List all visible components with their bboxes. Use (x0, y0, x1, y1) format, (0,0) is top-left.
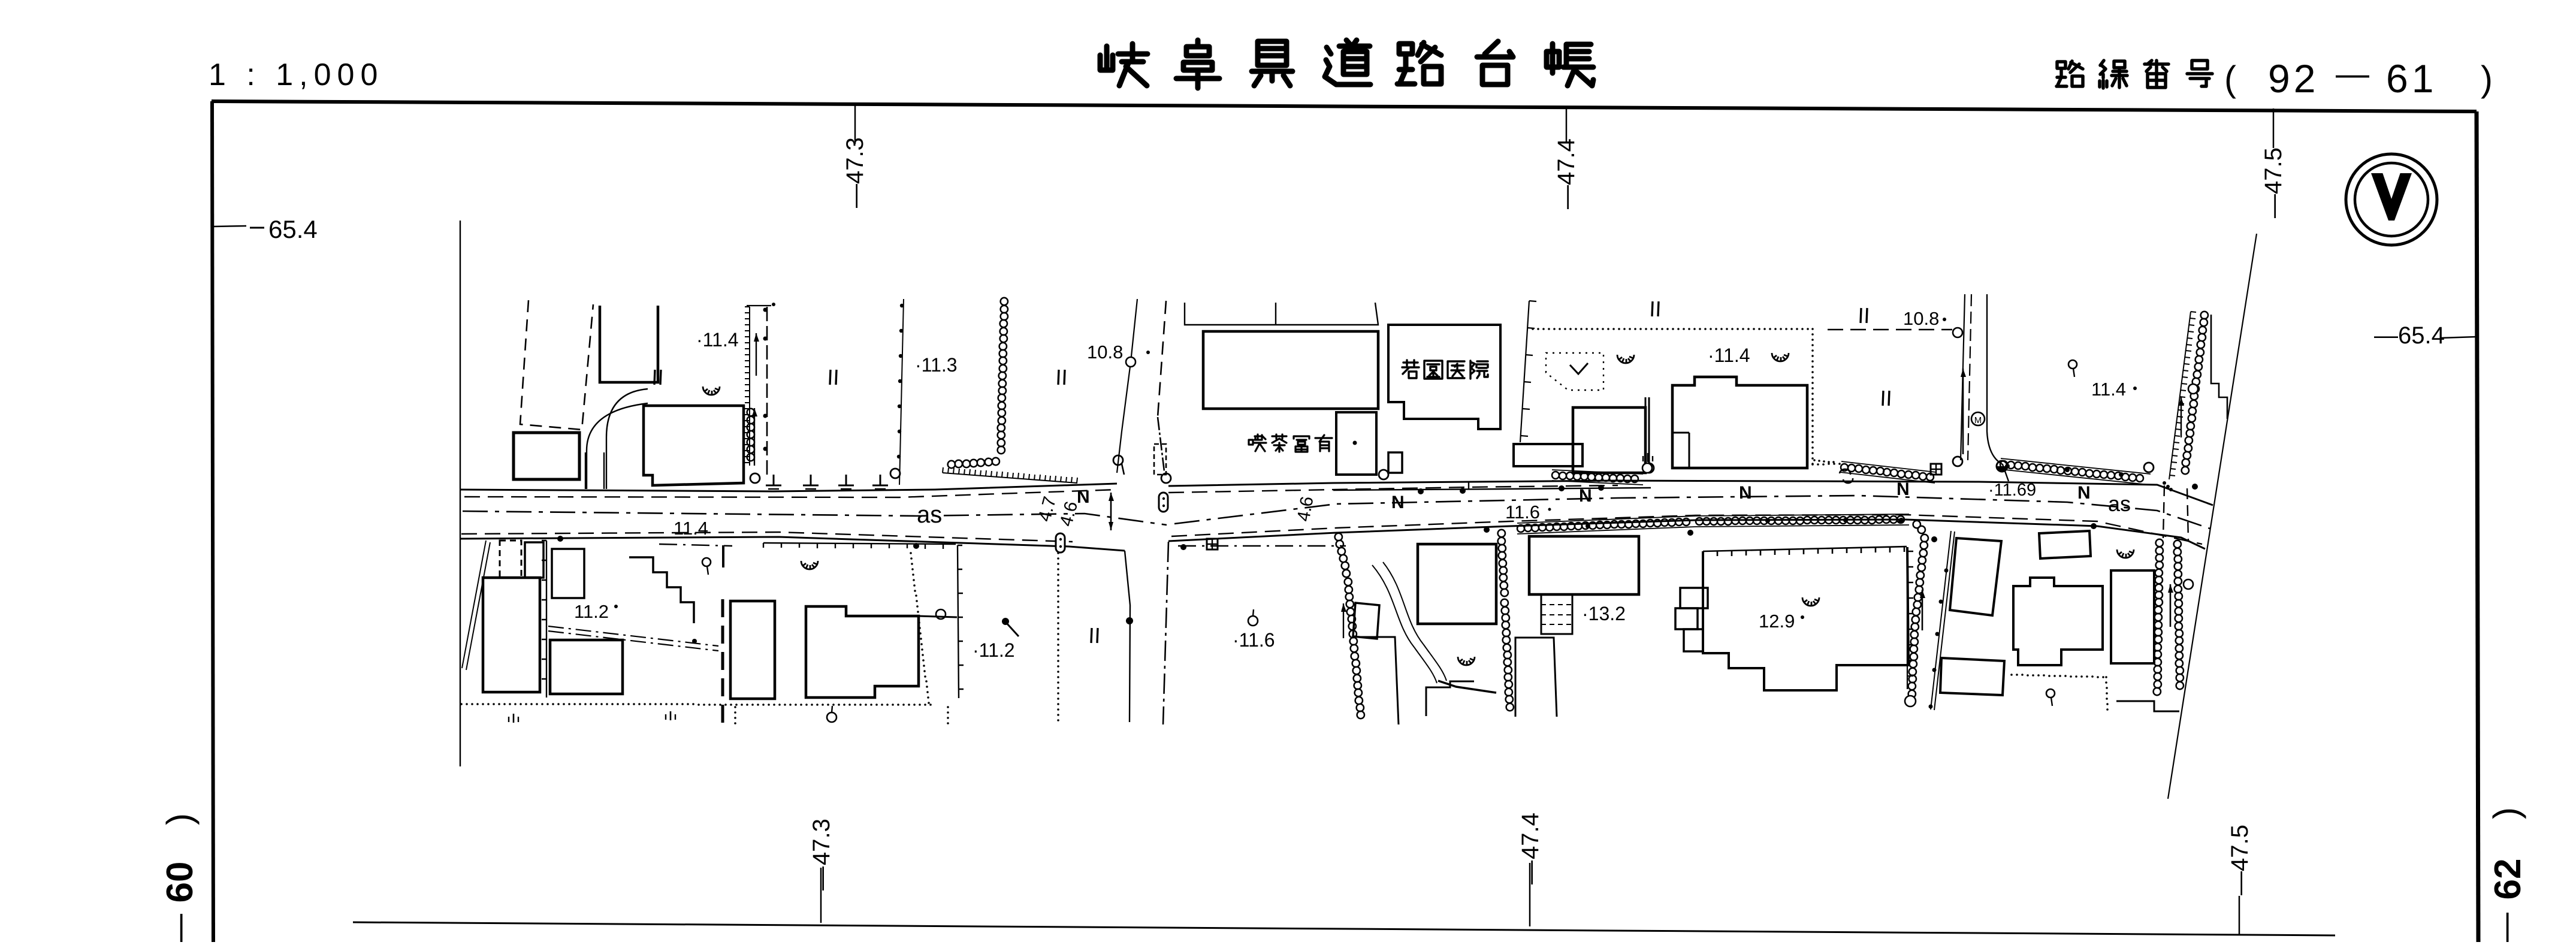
svg-text:N: N (1579, 486, 1592, 506)
svg-text:N: N (1391, 493, 1405, 512)
svg-text:1 : 1,000: 1 : 1,000 (209, 58, 383, 92)
svg-text:·11.6: ·11.6 (1233, 629, 1275, 651)
svg-text:as: as (2108, 491, 2131, 516)
svg-text:11.4: 11.4 (674, 518, 708, 539)
svg-text:65.4: 65.4 (268, 215, 318, 243)
svg-text:92: 92 (2268, 56, 2319, 101)
svg-text:60: 60 (159, 862, 201, 903)
svg-text:—47.4: —47.4 (1553, 138, 1580, 209)
svg-text:·11.2: ·11.2 (973, 639, 1015, 661)
svg-text:N: N (1896, 479, 1910, 499)
svg-text:N: N (2077, 483, 2091, 503)
svg-text:61: 61 (2386, 56, 2437, 101)
svg-text:—: — (2486, 913, 2523, 942)
svg-text:—47.3: —47.3 (842, 137, 868, 208)
svg-text:47.4: 47.4 (1517, 813, 1544, 859)
svg-text:47.5: 47.5 (2227, 825, 2253, 871)
svg-text:): ) (159, 813, 200, 825)
svg-text:·11.3: ·11.3 (915, 354, 958, 376)
svg-text:as: as (917, 502, 942, 528)
svg-text:·11.69: ·11.69 (1988, 481, 2036, 500)
svg-text:62: 62 (2487, 859, 2529, 900)
svg-text:47.3: 47.3 (808, 819, 835, 865)
svg-text:—: — (2336, 55, 2369, 92)
svg-text:—: — (159, 914, 197, 942)
svg-text:11.6: 11.6 (1505, 502, 1540, 523)
svg-text:—: — (808, 866, 835, 890)
svg-text:11.4: 11.4 (2091, 379, 2126, 400)
svg-text:·11.4: ·11.4 (1708, 345, 1750, 366)
svg-text:): ) (2486, 807, 2526, 819)
svg-text:11.2: 11.2 (574, 601, 609, 622)
svg-text:10.8: 10.8 (1087, 342, 1123, 363)
svg-text:10.8: 10.8 (1903, 308, 1939, 329)
svg-text:M: M (1974, 415, 1982, 425)
svg-text:(: ( (2224, 59, 2236, 99)
svg-text:—47.5: —47.5 (2260, 147, 2287, 218)
svg-text:12.9: 12.9 (1759, 611, 1795, 632)
svg-text:—: — (1517, 861, 1544, 884)
svg-text:—65.4: —65.4 (2374, 322, 2445, 349)
svg-text:—: — (2227, 871, 2253, 895)
svg-text:·11.4: ·11.4 (696, 329, 739, 351)
svg-text:N: N (1739, 483, 1752, 503)
svg-text:): ) (2481, 59, 2493, 99)
svg-text:·13.2: ·13.2 (1582, 603, 1626, 624)
